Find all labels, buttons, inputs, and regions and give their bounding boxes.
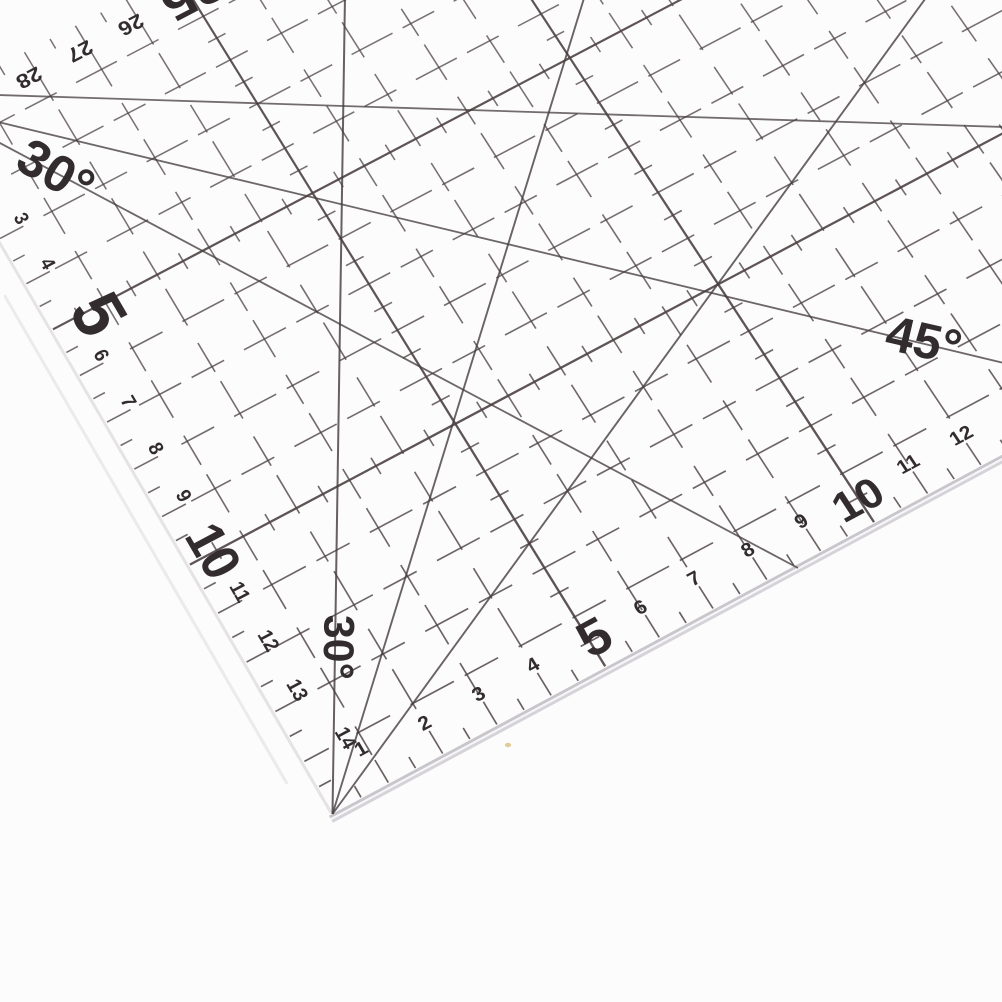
svg-text:30°: 30° [313, 614, 362, 680]
